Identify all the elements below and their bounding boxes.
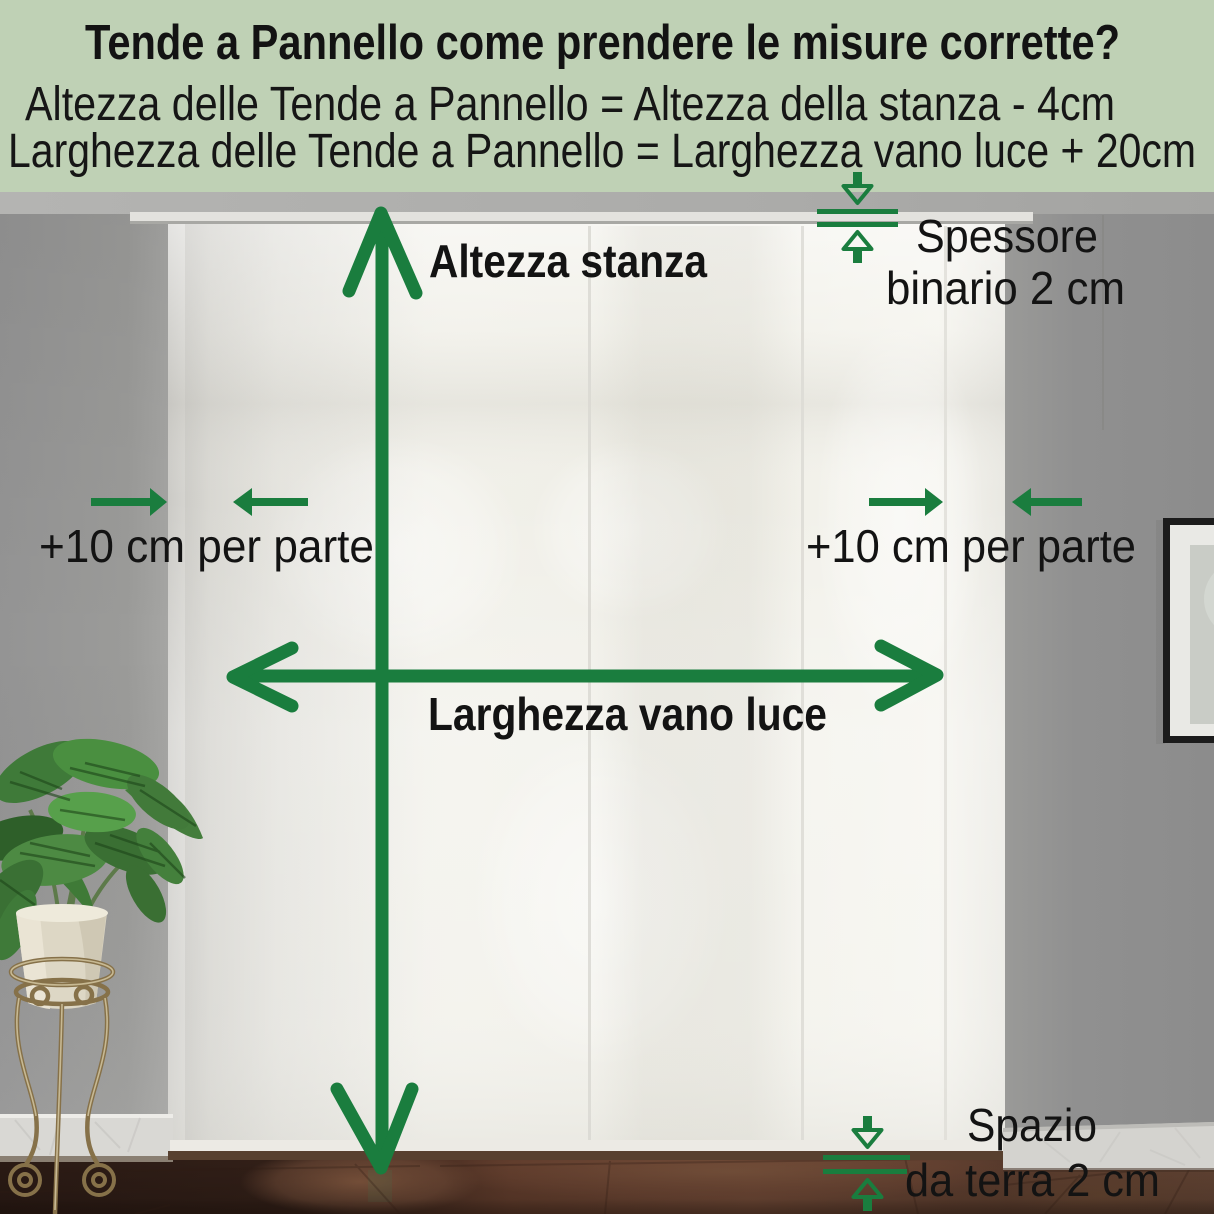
svg-text:Altezza delle Tende a Pannello: Altezza delle Tende a Pannello = Altezza… (25, 78, 1115, 131)
svg-text:+10 cm per parte: +10 cm per parte (806, 520, 1136, 572)
svg-text:Tende a Pannello come prendere: Tende a Pannello come prendere le misure… (85, 16, 1120, 70)
svg-text:Spazio: Spazio (967, 1099, 1097, 1151)
svg-text:Altezza stanza: Altezza stanza (429, 235, 707, 287)
svg-text:binario 2 cm: binario 2 cm (886, 262, 1125, 314)
svg-text:+10 cm per parte: +10 cm per parte (39, 520, 374, 572)
svg-text:Larghezza vano luce: Larghezza vano luce (428, 688, 827, 740)
svg-text:Larghezza delle Tende a Pannel: Larghezza delle Tende a Pannello = Largh… (8, 125, 1196, 178)
svg-text:da terra 2 cm: da terra 2 cm (905, 1154, 1160, 1206)
svg-text:Spessore: Spessore (916, 210, 1098, 262)
